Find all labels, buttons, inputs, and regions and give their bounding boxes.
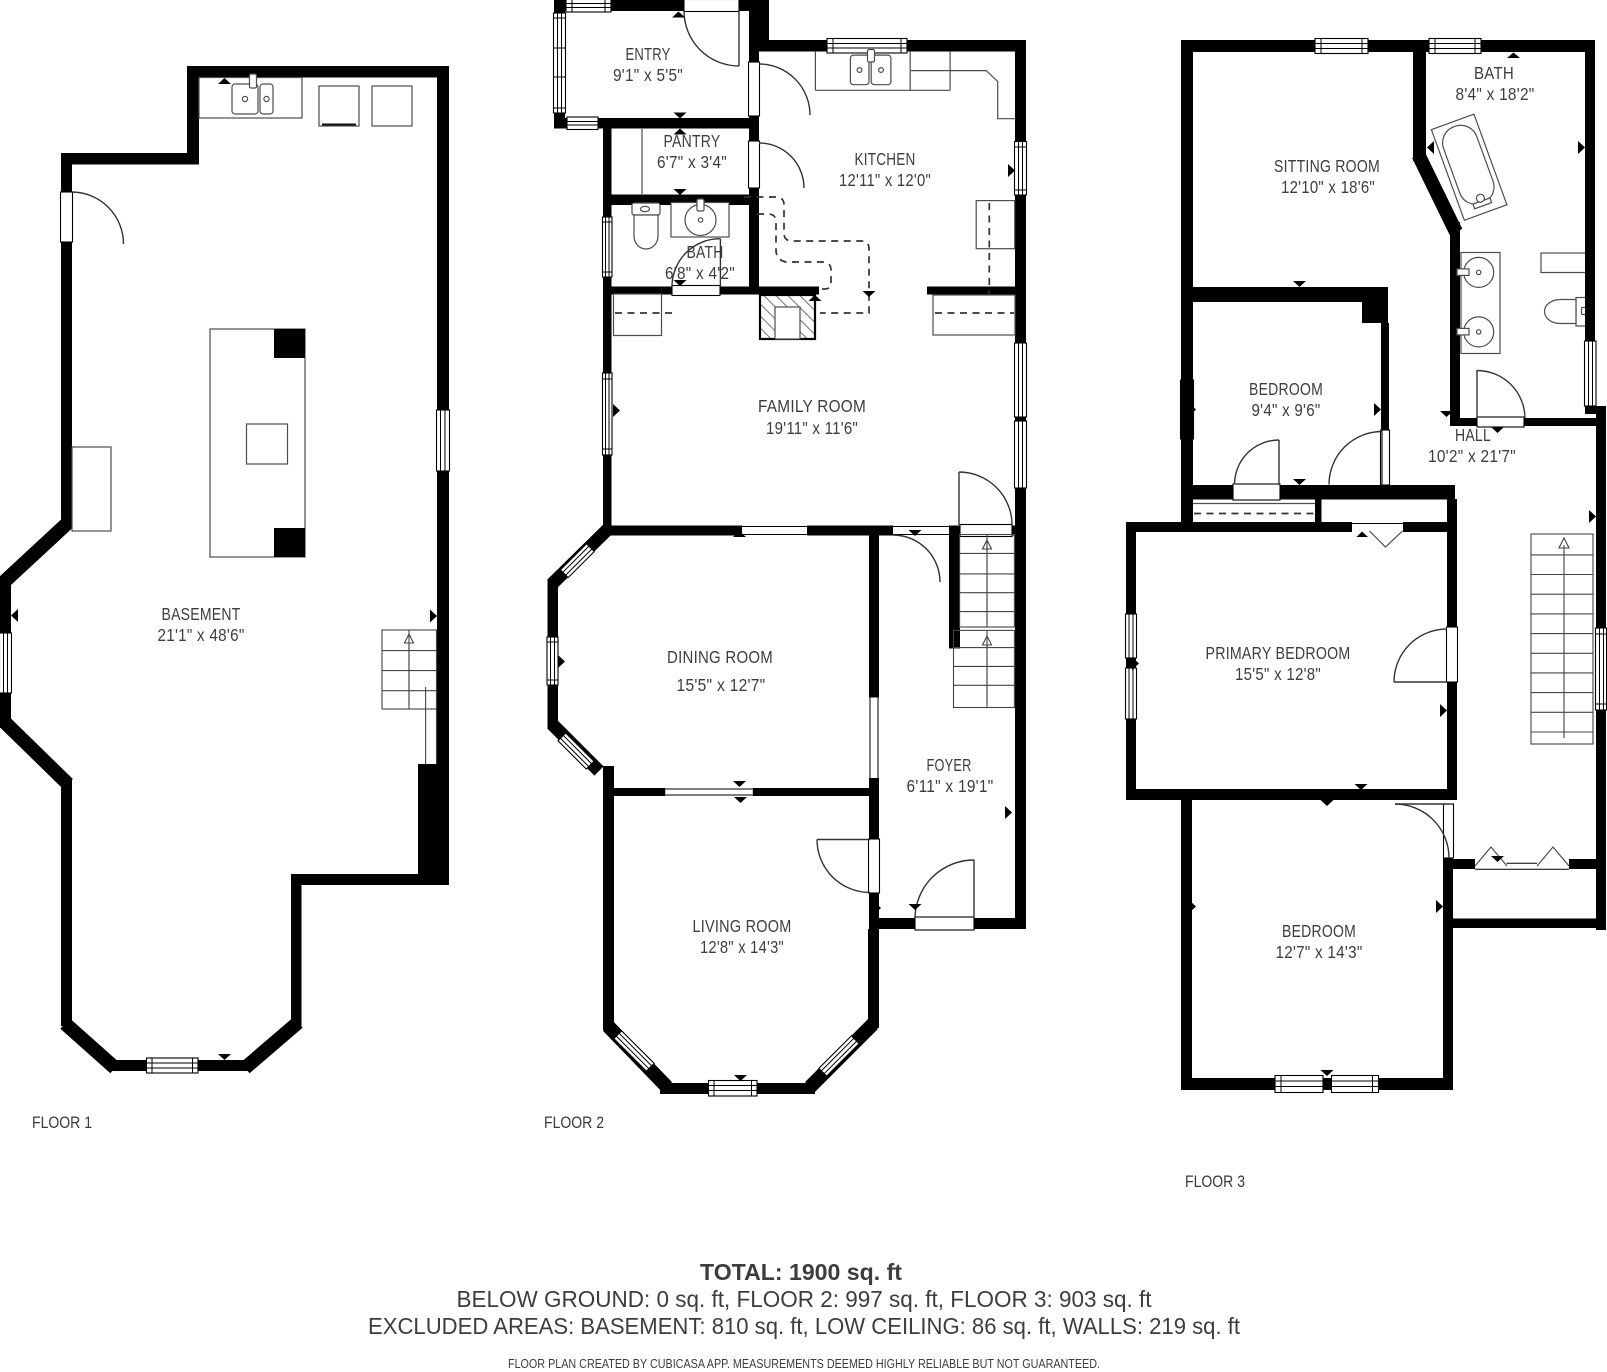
svg-text:FAMILY ROOM: FAMILY ROOM <box>758 396 866 416</box>
svg-text:FLOOR 3: FLOOR 3 <box>1185 1172 1245 1191</box>
svg-text:DINING ROOM: DINING ROOM <box>667 647 773 667</box>
svg-text:FOYER: FOYER <box>927 755 972 775</box>
svg-text:6'11" x 19'1": 6'11" x 19'1" <box>907 776 994 796</box>
svg-text:9'1" x 5'5": 9'1" x 5'5" <box>613 65 683 85</box>
svg-text:BEDROOM: BEDROOM <box>1282 921 1356 941</box>
svg-text:BASEMENT: BASEMENT <box>162 604 241 624</box>
svg-text:12'10" x 18'6": 12'10" x 18'6" <box>1281 177 1375 197</box>
svg-text:PANTRY: PANTRY <box>664 131 721 151</box>
svg-text:ENTRY: ENTRY <box>626 44 671 64</box>
svg-text:FLOOR 1: FLOOR 1 <box>32 1113 92 1132</box>
svg-text:HALL: HALL <box>1455 425 1491 445</box>
svg-text:BELOW GROUND: 0 sq. ft, FLOOR: BELOW GROUND: 0 sq. ft, FLOOR 2: 997 sq.… <box>457 1286 1152 1312</box>
svg-text:SITTING ROOM: SITTING ROOM <box>1274 156 1380 176</box>
svg-text:FLOOR PLAN CREATED BY CUBICASA: FLOOR PLAN CREATED BY CUBICASA APP. MEAS… <box>508 1357 1100 1371</box>
svg-text:15'5" x 12'8": 15'5" x 12'8" <box>1235 664 1321 684</box>
svg-text:LIVING ROOM: LIVING ROOM <box>693 916 792 936</box>
svg-text:10'2" x 21'7": 10'2" x 21'7" <box>1428 446 1516 466</box>
svg-text:6'7" x 3'4": 6'7" x 3'4" <box>657 152 727 172</box>
svg-text:12'11" x 12'0": 12'11" x 12'0" <box>839 170 931 190</box>
svg-text:12'8" x 14'3": 12'8" x 14'3" <box>700 937 784 957</box>
svg-text:BATH: BATH <box>1474 63 1514 83</box>
svg-text:EXCLUDED AREAS: BASEMENT: 810: EXCLUDED AREAS: BASEMENT: 810 sq. ft, LO… <box>368 1313 1240 1339</box>
svg-text:12'7" x 14'3": 12'7" x 14'3" <box>1276 942 1363 962</box>
svg-text:8'4" x 18'2": 8'4" x 18'2" <box>1456 84 1535 104</box>
svg-text:KITCHEN: KITCHEN <box>855 149 916 169</box>
svg-text:15'5" x 12'7": 15'5" x 12'7" <box>677 675 766 695</box>
svg-text:19'11" x 11'6": 19'11" x 11'6" <box>766 418 858 438</box>
svg-text:9'4" x 9'6": 9'4" x 9'6" <box>1252 400 1321 420</box>
svg-text:TOTAL: 1900 sq. ft: TOTAL: 1900 sq. ft <box>700 1259 902 1285</box>
svg-text:FLOOR 2: FLOOR 2 <box>544 1113 604 1132</box>
svg-text:BEDROOM: BEDROOM <box>1249 379 1323 399</box>
svg-text:BATH: BATH <box>687 242 724 262</box>
svg-text:PRIMARY BEDROOM: PRIMARY BEDROOM <box>1206 643 1351 663</box>
svg-text:21'1" x 48'6": 21'1" x 48'6" <box>158 625 245 645</box>
